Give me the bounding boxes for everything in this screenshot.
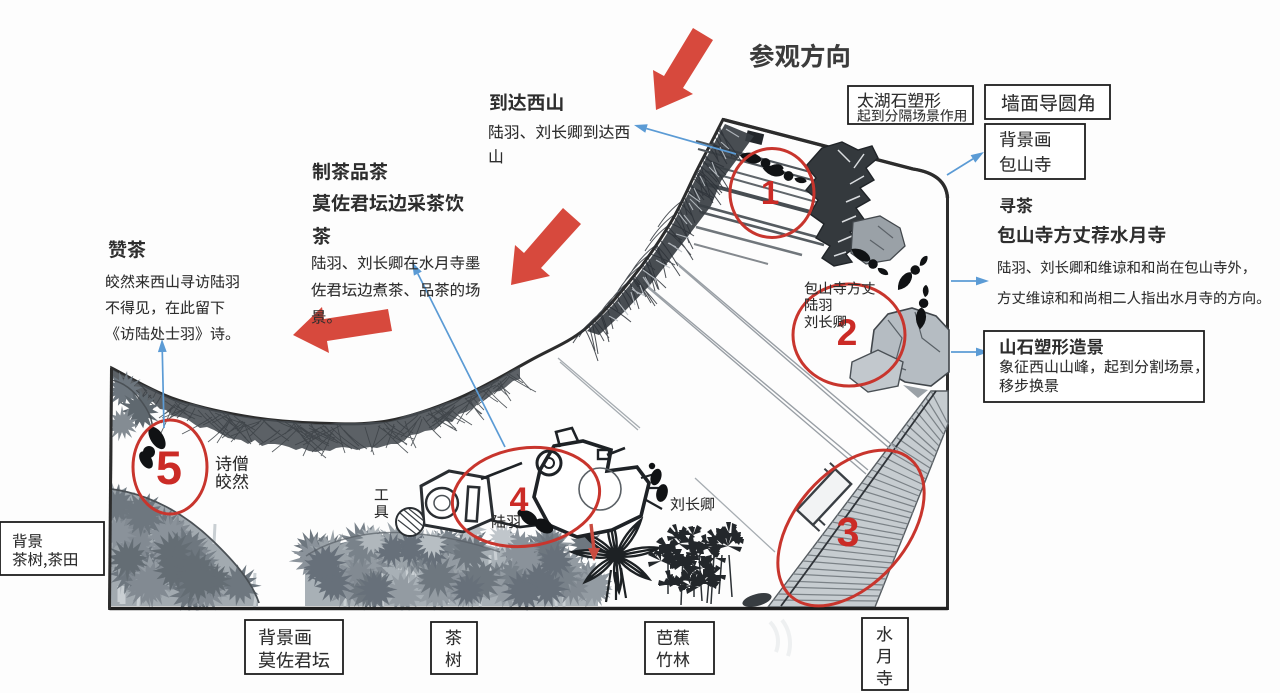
svg-text:5: 5 bbox=[156, 441, 182, 494]
svg-text:3: 3 bbox=[837, 509, 860, 555]
svg-text:4: 4 bbox=[510, 481, 529, 519]
svg-text:2: 2 bbox=[837, 312, 858, 353]
svg-text:1: 1 bbox=[761, 174, 779, 211]
